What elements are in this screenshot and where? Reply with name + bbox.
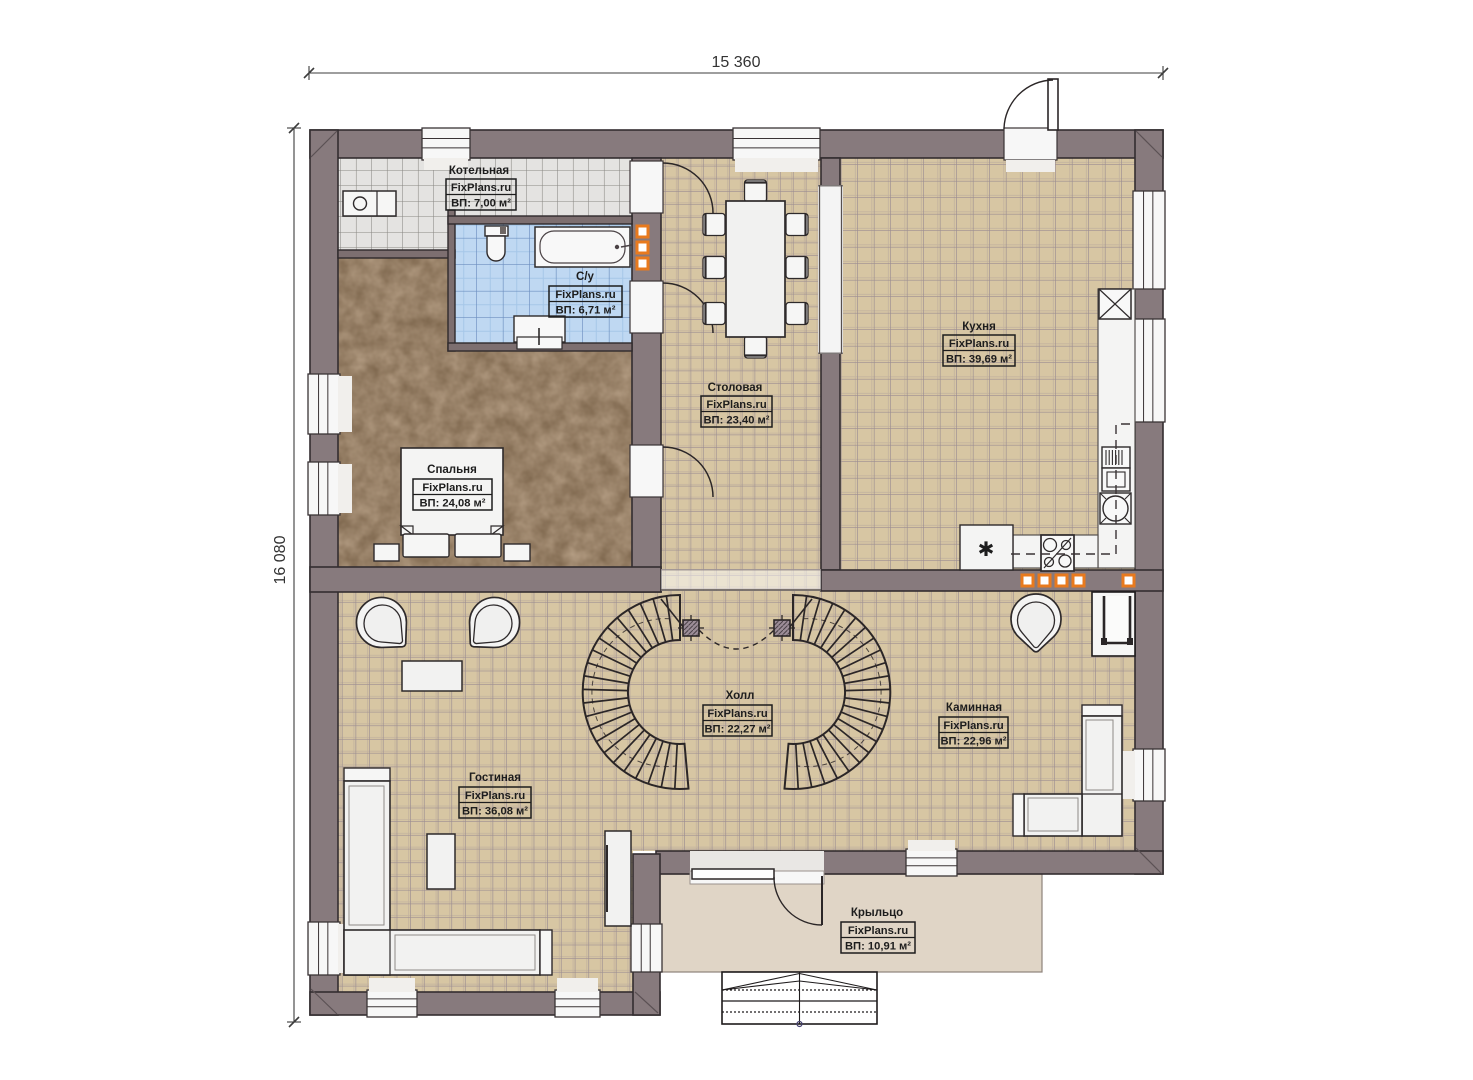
svg-text:Крыльцо: Крыльцо xyxy=(851,907,903,919)
svg-text:ВП: 10,91 м²: ВП: 10,91 м² xyxy=(845,941,911,953)
svg-text:16 080: 16 080 xyxy=(272,535,289,584)
svg-text:FixPlans.ru: FixPlans.ru xyxy=(706,399,766,411)
svg-text:15 360: 15 360 xyxy=(712,54,761,71)
svg-text:Столовая: Столовая xyxy=(708,382,763,394)
svg-text:Кухня: Кухня xyxy=(962,321,996,333)
svg-text:FixPlans.ru: FixPlans.ru xyxy=(422,482,482,494)
svg-text:ВП: 24,08 м²: ВП: 24,08 м² xyxy=(419,498,485,510)
svg-text:ВП: 22,96 м²: ВП: 22,96 м² xyxy=(940,736,1006,748)
svg-text:ВП: 7,00 м²: ВП: 7,00 м² xyxy=(451,198,511,210)
svg-text:FixPlans.ru: FixPlans.ru xyxy=(943,720,1003,732)
svg-text:Холл: Холл xyxy=(726,690,755,702)
svg-text:FixPlans.ru: FixPlans.ru xyxy=(707,708,767,720)
svg-text:С/у: С/у xyxy=(576,271,595,283)
svg-text:FixPlans.ru: FixPlans.ru xyxy=(848,925,908,937)
svg-text:ВП: 22,27 м²: ВП: 22,27 м² xyxy=(704,724,770,736)
svg-text:ВП: 23,40 м²: ВП: 23,40 м² xyxy=(703,415,769,427)
svg-text:ВП: 36,08 м²: ВП: 36,08 м² xyxy=(462,806,528,818)
svg-text:ВП: 39,69 м²: ВП: 39,69 м² xyxy=(946,354,1012,366)
svg-text:Каминная: Каминная xyxy=(946,702,1002,714)
svg-text:ВП: 6,71 м²: ВП: 6,71 м² xyxy=(556,305,616,317)
svg-text:Спальня: Спальня xyxy=(427,464,477,476)
svg-text:FixPlans.ru: FixPlans.ru xyxy=(949,338,1009,350)
svg-text:FixPlans.ru: FixPlans.ru xyxy=(465,790,525,802)
svg-text:✱: ✱ xyxy=(978,539,995,561)
svg-text:FixPlans.ru: FixPlans.ru xyxy=(451,182,511,194)
svg-text:FixPlans.ru: FixPlans.ru xyxy=(555,289,615,301)
svg-text:Котельная: Котельная xyxy=(449,165,509,177)
svg-text:Гостиная: Гостиная xyxy=(469,772,521,784)
